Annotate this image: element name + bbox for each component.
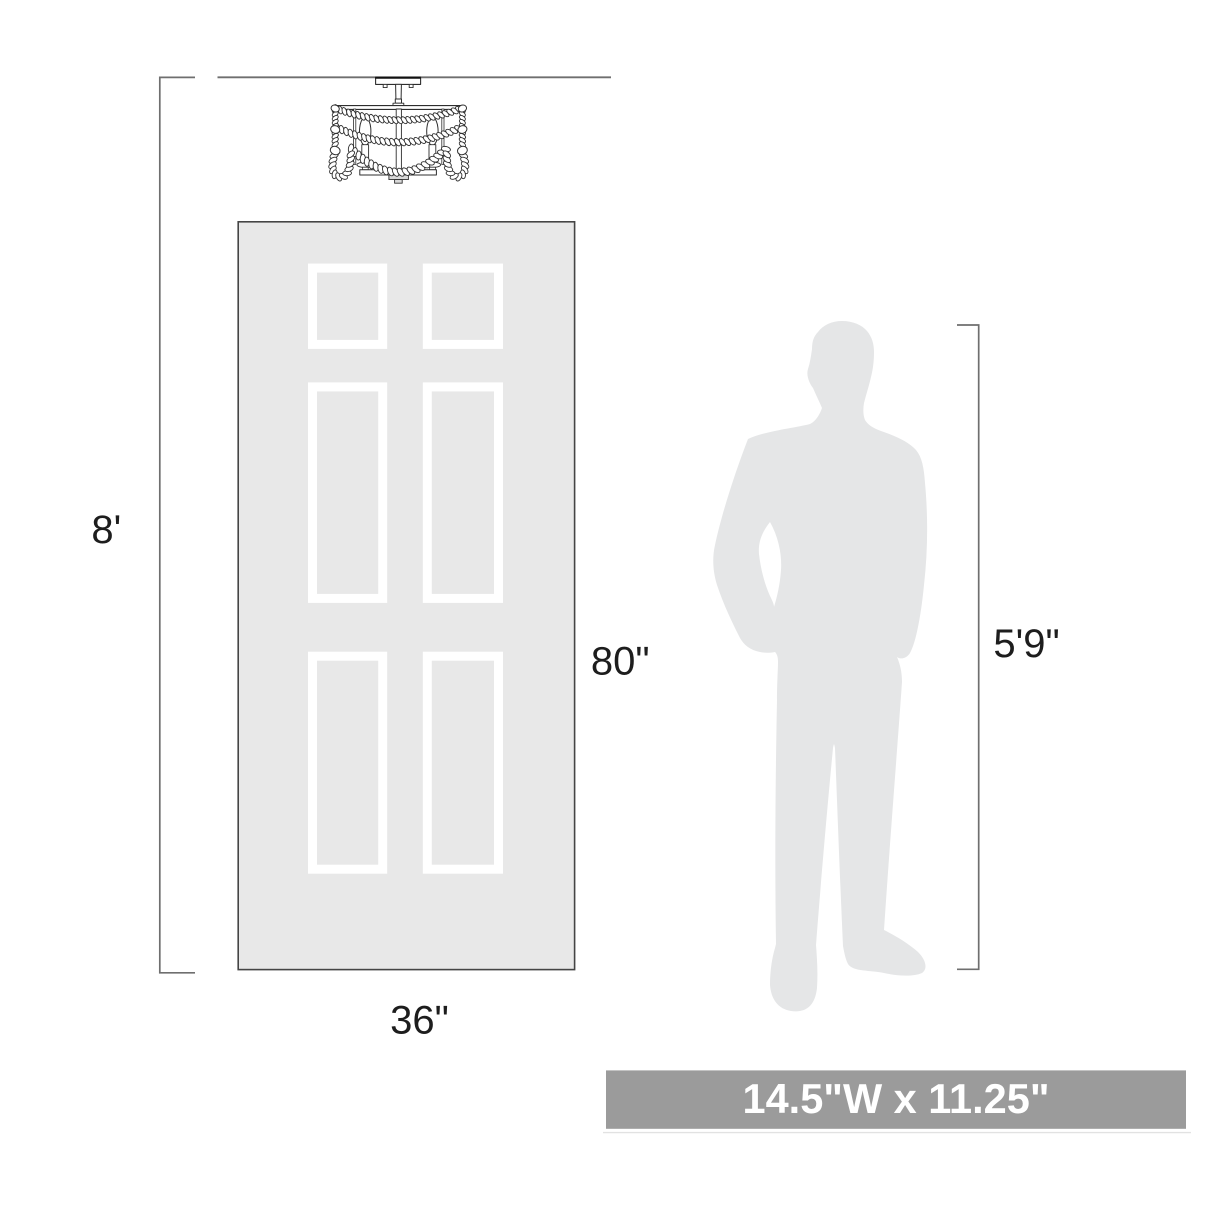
svg-text:80": 80" bbox=[591, 639, 650, 683]
svg-text:14.5"W x 11.25": 14.5"W x 11.25" bbox=[743, 1075, 1050, 1122]
svg-text:36": 36" bbox=[390, 999, 449, 1043]
svg-text:8': 8' bbox=[91, 508, 121, 552]
svg-text:5'9": 5'9" bbox=[993, 622, 1059, 666]
